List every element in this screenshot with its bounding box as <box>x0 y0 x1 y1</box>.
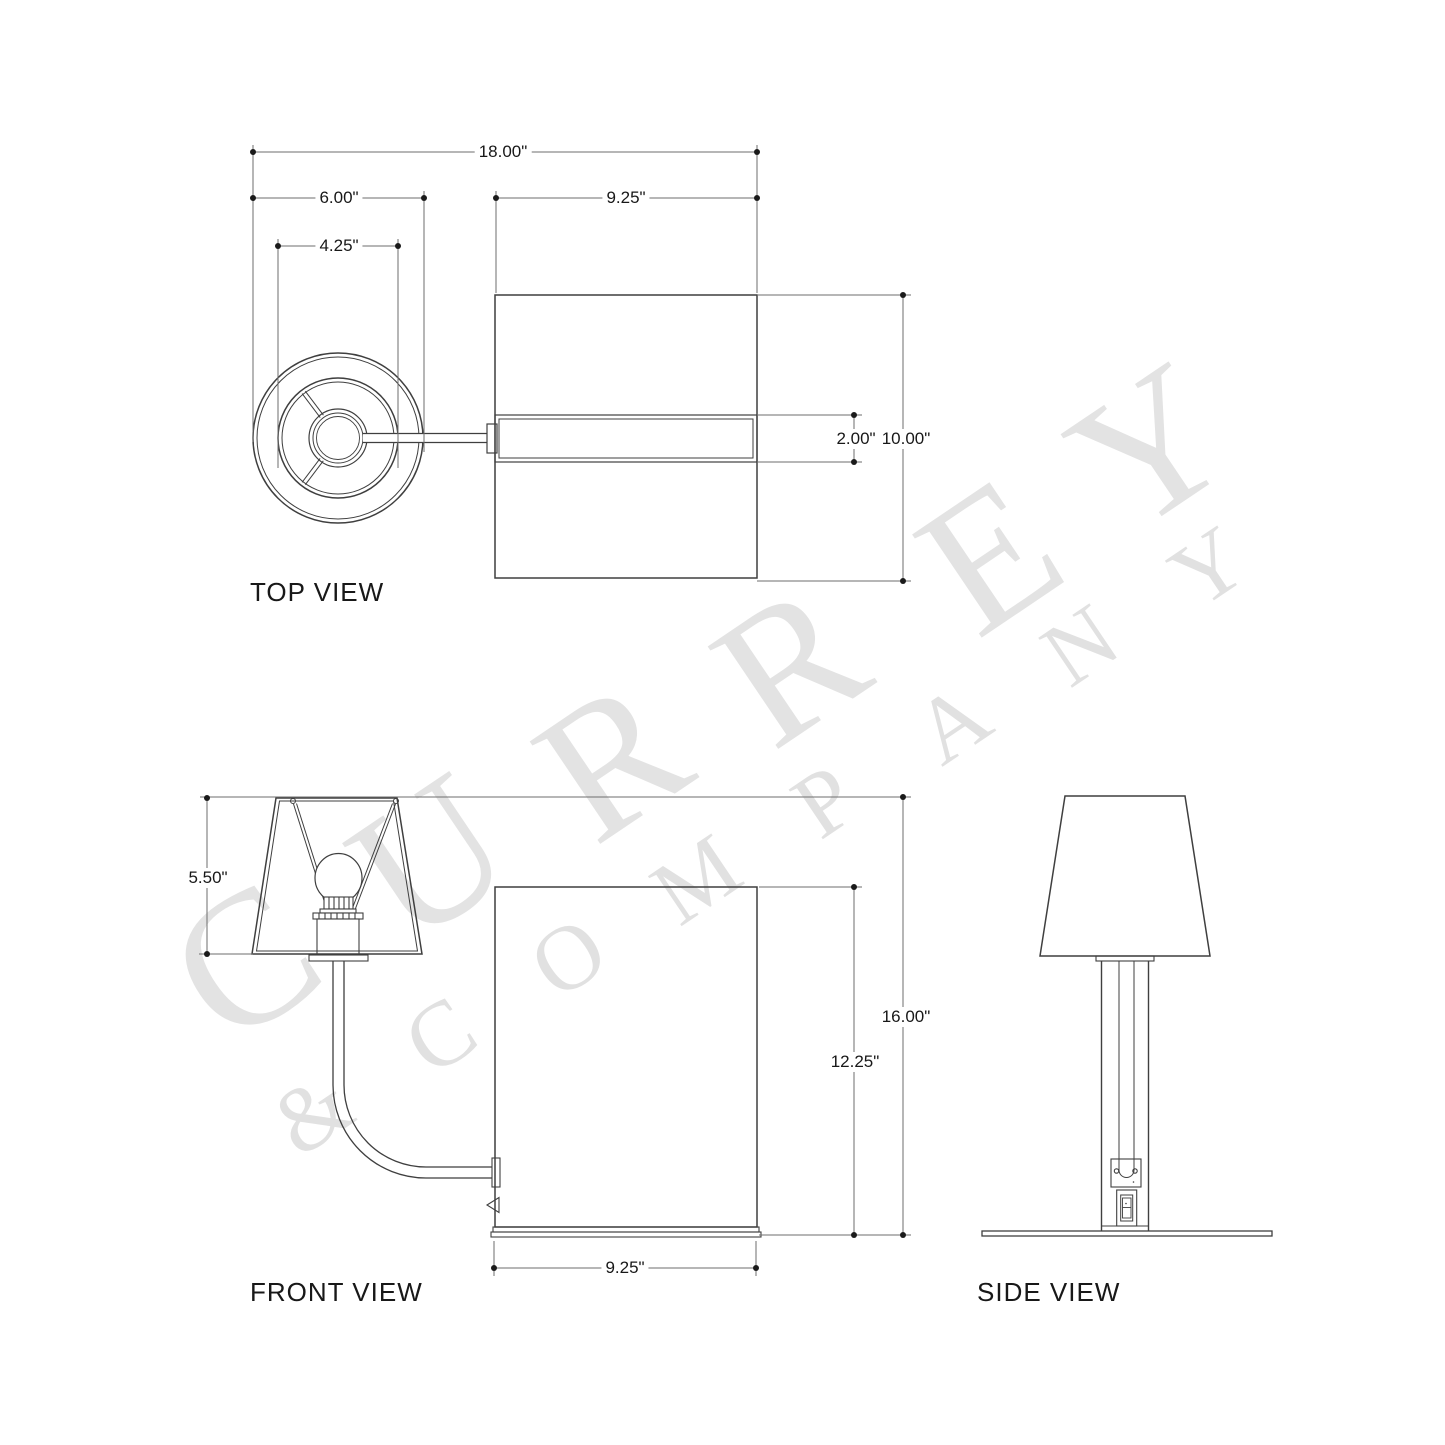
dim-top-overall-width: 18.00" <box>475 142 532 162</box>
front-view-dimensions <box>199 794 911 1276</box>
front-view-label: FRONT VIEW <box>250 1277 423 1308</box>
mounting-plate <box>1111 1159 1141 1187</box>
front-view-drawing <box>252 798 761 1237</box>
top-view-drawing <box>253 295 757 578</box>
arm-front <box>333 961 500 1213</box>
shade-side <box>1040 796 1210 956</box>
switch-outlet <box>1117 1190 1137 1226</box>
top-view-label: TOP VIEW <box>250 577 384 608</box>
dim-front-shade-height: 5.50" <box>184 868 231 888</box>
dim-top-shade-offset: 6.00" <box>315 188 362 208</box>
box-front <box>491 887 761 1237</box>
side-view-drawing <box>982 796 1272 1236</box>
technical-drawing <box>0 0 1445 1445</box>
light-bulb <box>315 854 362 903</box>
box-top <box>495 295 757 578</box>
side-view-label: SIDE VIEW <box>977 1277 1120 1308</box>
dim-front-box-width: 9.25" <box>601 1258 648 1278</box>
dim-front-overall-height: 16.00" <box>878 1007 935 1027</box>
dim-top-slot-height: 2.00" <box>832 429 879 449</box>
spec-sheet-page: C U R R E Y & C O M P A N Y <box>0 0 1445 1445</box>
arm-top <box>363 424 497 453</box>
dim-top-box-depth: 10.00" <box>878 429 935 449</box>
base-side <box>982 1231 1272 1236</box>
dim-top-box-width: 9.25" <box>602 188 649 208</box>
dim-front-box-height: 12.25" <box>827 1052 884 1072</box>
dim-top-shade-ring: 4.25" <box>315 236 362 256</box>
